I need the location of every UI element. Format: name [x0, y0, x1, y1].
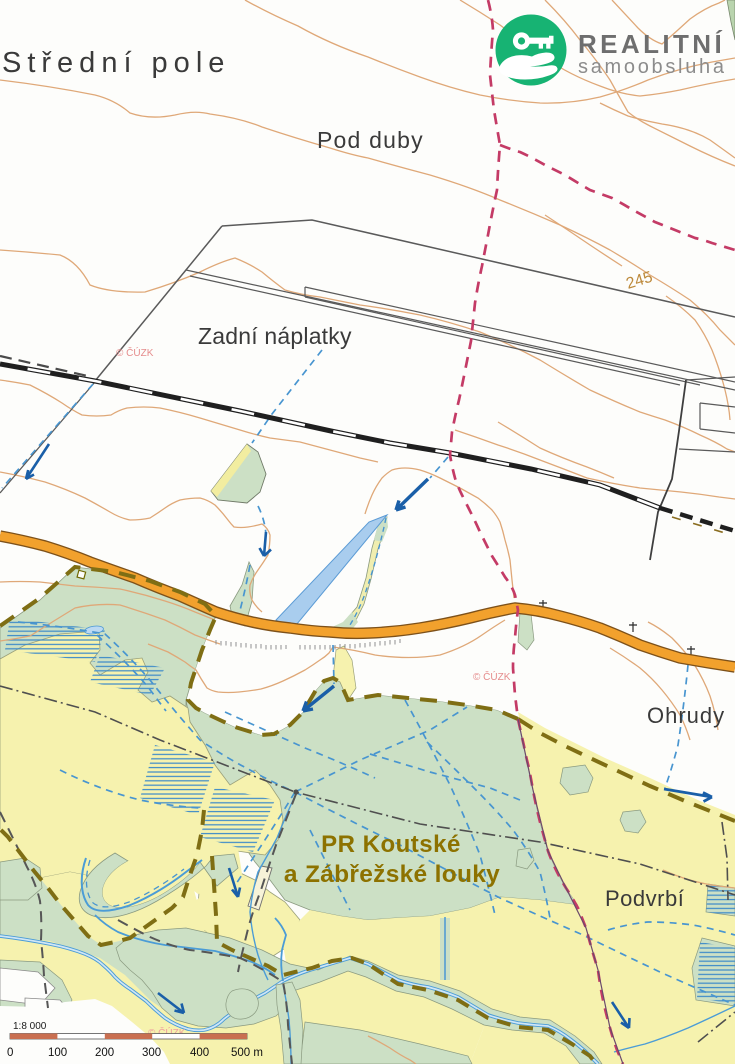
svg-text:1:8 000: 1:8 000 [13, 1021, 47, 1032]
svg-text:Ohrudy: Ohrudy [647, 703, 725, 728]
svg-text:a Zábřežské louky: a Zábřežské louky [284, 861, 500, 888]
svg-text:500 m: 500 m [231, 1047, 263, 1059]
svg-text:Zadní náplatky: Zadní náplatky [198, 323, 352, 349]
svg-text:PR Koutské: PR Koutské [321, 831, 461, 858]
svg-text:samoobsluha: samoobsluha [578, 56, 727, 78]
svg-text:Pod duby: Pod duby [317, 127, 424, 153]
svg-text:Podvrbí: Podvrbí [605, 886, 684, 911]
svg-text:300: 300 [142, 1047, 161, 1059]
svg-text:400: 400 [190, 1047, 209, 1059]
svg-text:Střední pole: Střední pole [2, 47, 230, 79]
svg-text:200: 200 [95, 1047, 114, 1059]
svg-text:0: 0 [7, 1047, 13, 1059]
svg-text:© ČÚZK: © ČÚZK [116, 346, 154, 359]
svg-text:© ČÚZK: © ČÚZK [473, 670, 511, 683]
svg-text:100: 100 [48, 1047, 67, 1059]
svg-text:REALITNÍ: REALITNÍ [578, 29, 725, 59]
